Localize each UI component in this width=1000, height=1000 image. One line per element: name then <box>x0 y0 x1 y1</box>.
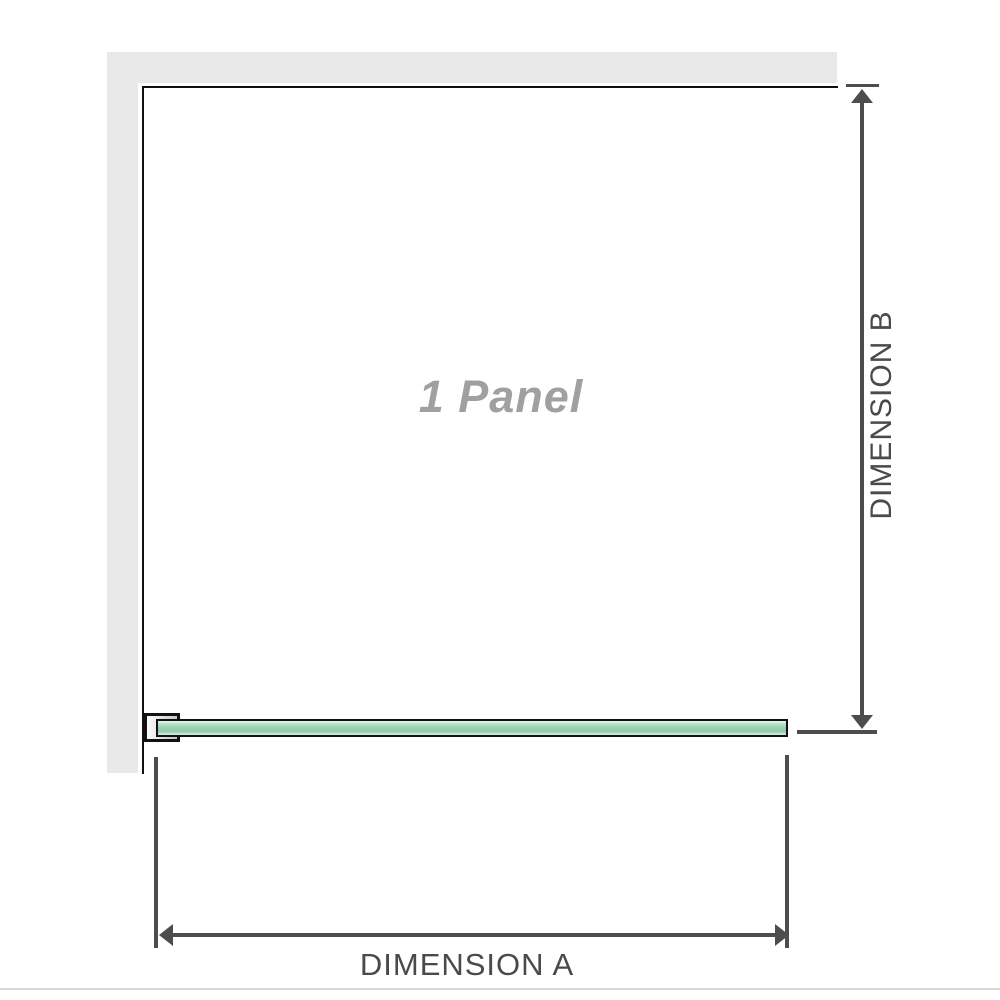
dimension-a-extension-right <box>785 755 789 948</box>
dimension-b-tick-top <box>846 84 879 87</box>
bottom-divider <box>0 988 1000 990</box>
dimension-b-tick-bottom <box>797 730 877 734</box>
wall-left <box>107 52 138 773</box>
arrow-down-icon <box>851 715 873 729</box>
dimension-a-line <box>170 933 778 937</box>
glass-panel <box>156 719 788 737</box>
dimension-b-label: DIMENSION B <box>865 310 899 519</box>
arrow-right-icon <box>775 924 789 946</box>
panel-count-label: 1 Panel <box>419 371 584 423</box>
dimension-a-extension-left <box>154 757 158 948</box>
panel-outline-left <box>142 86 144 774</box>
dimension-b-line <box>860 97 864 720</box>
dimension-a-label: DIMENSION A <box>360 947 574 983</box>
panel-outline-top <box>142 86 838 88</box>
wall-top <box>107 52 837 83</box>
diagram-canvas: 1 Panel DIMENSION B DIMENSION A <box>0 0 1000 1000</box>
